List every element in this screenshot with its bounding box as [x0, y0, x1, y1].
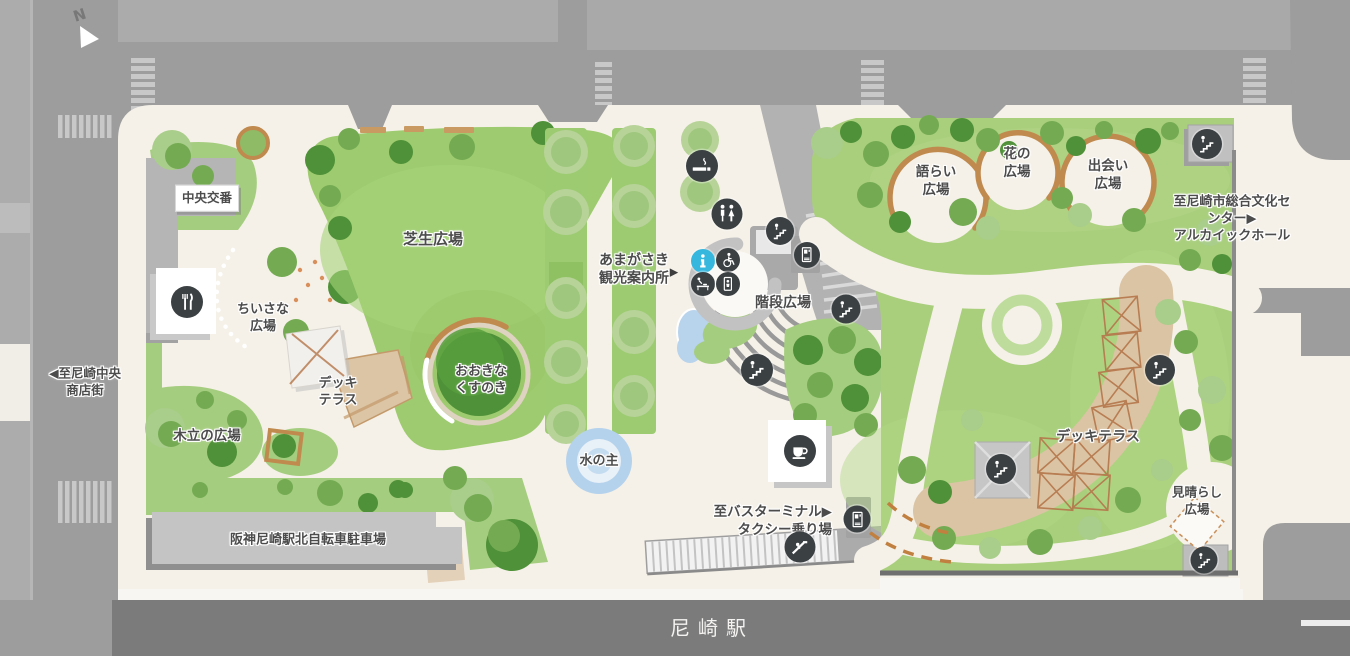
stairs-icon-garden-bottom	[1191, 547, 1218, 574]
cafe-icon	[784, 435, 816, 467]
stairs-icon-upper	[766, 217, 794, 245]
tourist-info-arrow: ▶	[670, 266, 678, 279]
park-map: N 中央交番 ちいさな 広場 芝生広場 おおきな くすのき デッキ テラス 木立…	[0, 0, 1350, 656]
lookout-plaza-label: 見晴らし 広場	[1172, 485, 1222, 518]
tourist-info-label: あまがさき 観光案内所	[599, 252, 669, 289]
stairs-icon-deck-upper	[1145, 355, 1175, 385]
katarai-plaza-label: 語らい 広場	[916, 164, 957, 200]
station-side-line	[1301, 620, 1350, 626]
wheelchair-icon	[716, 248, 740, 272]
vending-machine-icon-1	[794, 242, 820, 268]
water-feature-label: 水の主	[579, 452, 618, 469]
garden-sidewalk	[880, 578, 1240, 590]
stairs-icon-deck-lower	[986, 454, 1016, 484]
police-box-label: 中央交番	[175, 185, 239, 212]
shopping-street-direction-label: ◀至尼崎中央 商店街	[49, 366, 121, 399]
culture-center-direction-label: 至尼崎市総合文化センター▶ アルカイックホール	[1173, 193, 1291, 244]
stairs-plaza-label: 階段広場	[755, 294, 811, 312]
big-camphor-label: おおきな くすのき	[455, 363, 507, 397]
deck-terrace-left-label: デッキ テラス	[318, 375, 357, 409]
terrain-svg	[0, 0, 1350, 656]
baby-keep-icon	[716, 272, 740, 296]
deai-plaza-label: 出会い 広場	[1088, 158, 1129, 194]
restaurant-icon	[171, 286, 203, 318]
baby-changing-icon	[691, 272, 715, 296]
deck-terrace-right-label: デッキテラス	[1056, 428, 1140, 446]
grove-plaza-label: 木立の広場	[173, 428, 241, 446]
bicycle-parking-label: 阪神尼崎駅北自転車駐車場	[230, 531, 386, 548]
stairs-icon-garden-top	[1192, 129, 1222, 159]
benches	[360, 126, 474, 133]
station-label: 尼崎駅	[670, 615, 754, 641]
restroom-icon	[712, 199, 743, 230]
bus-terminal-direction-label: 至バスターミナル▶ タクシー乗り場	[714, 504, 832, 540]
information-icon	[691, 249, 715, 273]
stairs-icon-walkway	[832, 295, 861, 324]
flower-plaza-label: 花の 広場	[1004, 146, 1031, 182]
small-plaza-label: ちいさな 広場	[237, 301, 289, 335]
tree-cluster	[784, 318, 883, 437]
lawn-plaza-label: 芝生広場	[403, 230, 463, 250]
escalator-icon	[785, 532, 816, 563]
station-sidewalk	[118, 589, 1243, 600]
stairs-icon-plaza	[741, 354, 773, 386]
vending-machine-icon-2	[844, 506, 871, 533]
smoking-area-icon	[686, 150, 718, 182]
